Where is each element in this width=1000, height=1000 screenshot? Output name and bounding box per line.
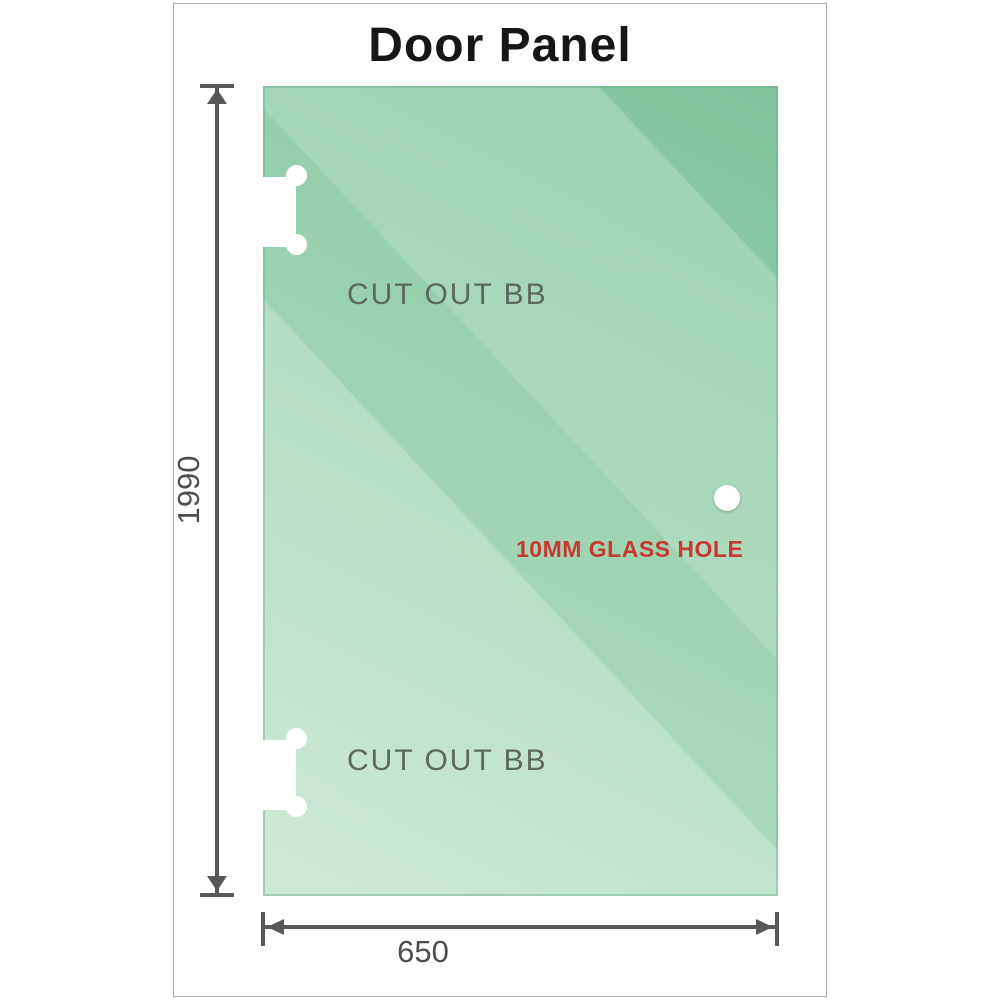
width-dimension-line <box>265 925 775 929</box>
glass-hole-label: 10MM GLASS HOLE <box>516 536 743 563</box>
arrow-down-icon <box>207 876 227 891</box>
height-dimension-cap-bottom <box>200 893 234 897</box>
width-dimension-tick-right <box>775 912 779 946</box>
arrow-up-icon <box>207 89 227 104</box>
diagram-title: Door Panel <box>173 18 827 73</box>
height-dimension-value: 1990 <box>172 430 206 550</box>
cutout-top-label: CUT OUT BB <box>347 278 548 312</box>
hinge-cutout-bottom-notch <box>261 740 296 810</box>
hinge-cutout-top-notch <box>261 177 296 247</box>
arrow-right-icon <box>756 919 773 935</box>
width-dimension-value: 650 <box>368 934 478 970</box>
width-dimension-tick-left <box>261 912 265 946</box>
cutout-bottom-label: CUT OUT BB <box>347 744 548 778</box>
height-dimension-line <box>215 86 219 894</box>
arrow-left-icon <box>267 919 284 935</box>
glass-hole <box>714 485 740 511</box>
door-panel-glass: CUT OUT BB CUT OUT BB 10MM GLASS HOLE <box>263 86 778 896</box>
